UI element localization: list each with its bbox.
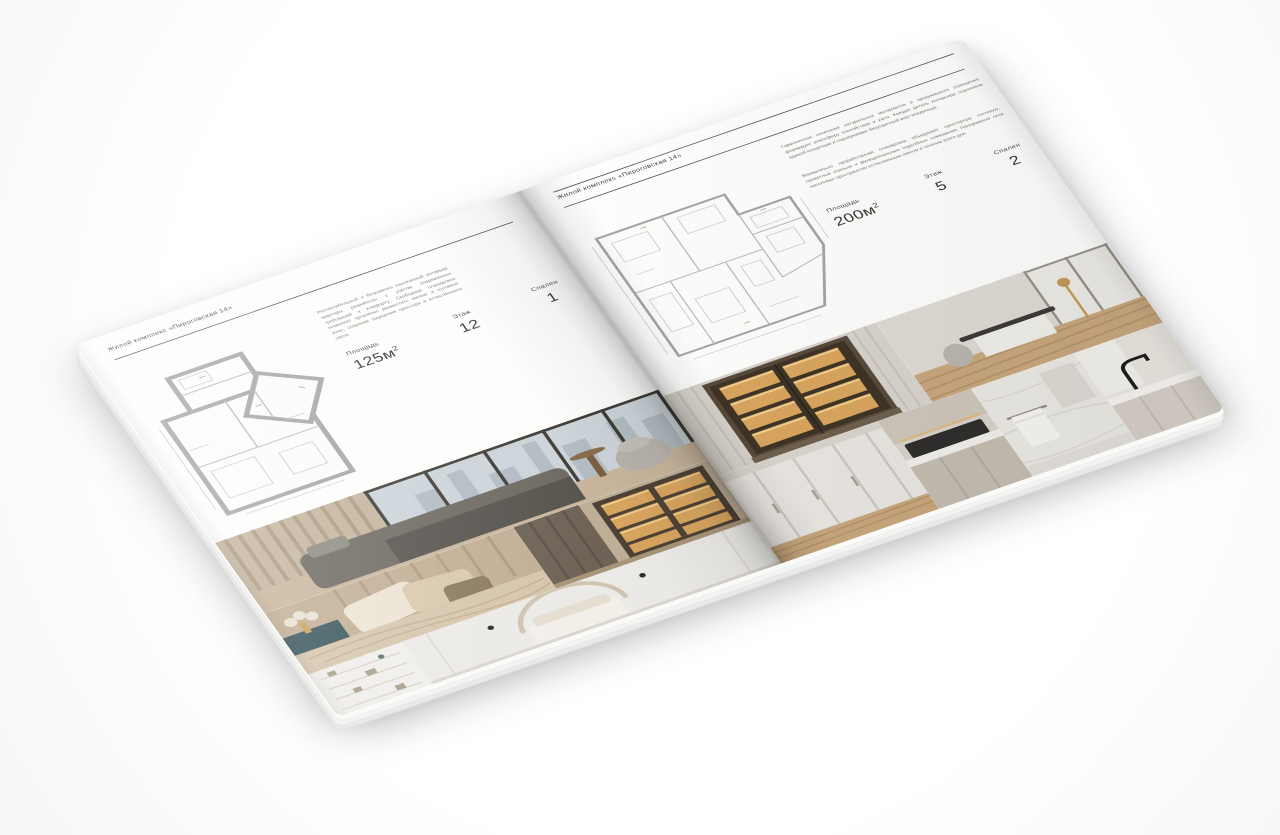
spec-area: Площадь 125м2 xyxy=(345,337,405,373)
spec-floor: Этаж 12 xyxy=(451,309,484,336)
spec-bedrooms-label: Спален xyxy=(993,142,1022,156)
spec-bedrooms: Спален 1 xyxy=(530,279,570,308)
spec-floor-value: 12 xyxy=(456,317,484,336)
spec-bedrooms: Спален 2 xyxy=(993,142,1033,171)
spec-bedrooms-label: Спален xyxy=(530,279,559,293)
spec-floor: Этаж 5 xyxy=(923,169,955,195)
brochure-mockup-scene: Жилой комплекс «Пироговская 14» xyxy=(0,0,1280,835)
spec-bedrooms-value: 1 xyxy=(544,290,563,306)
spec-area: Площадь 200м2 xyxy=(826,194,886,230)
spec-floor-value: 5 xyxy=(932,178,951,194)
spec-bedrooms-value: 2 xyxy=(1006,153,1025,169)
